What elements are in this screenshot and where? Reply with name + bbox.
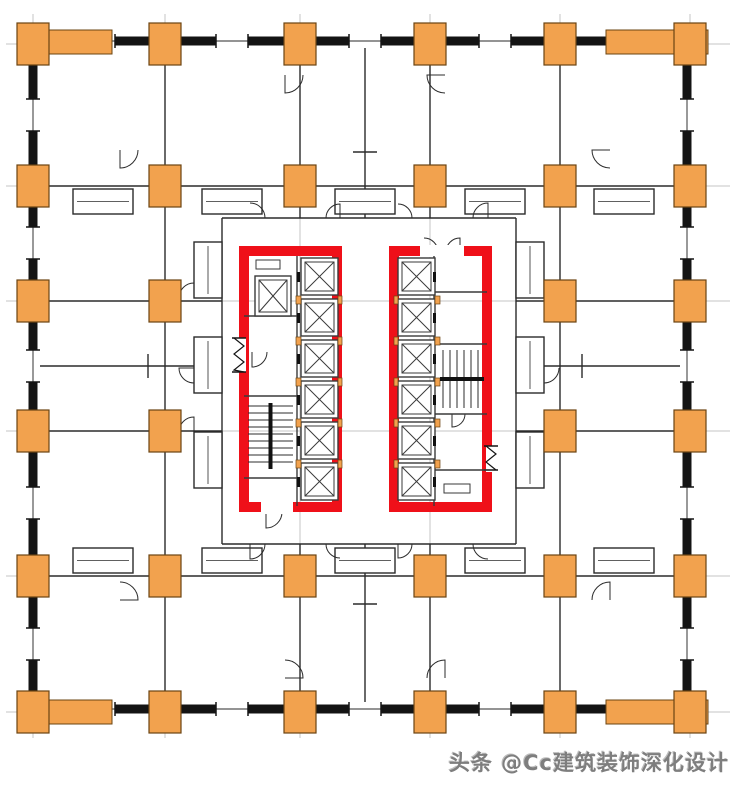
partition-walls	[36, 46, 688, 708]
elevator-shaft	[301, 381, 338, 418]
column	[149, 410, 181, 452]
column	[544, 691, 576, 733]
column	[674, 280, 706, 322]
grid-lines	[6, 14, 730, 738]
corner-wall-strips	[20, 30, 708, 724]
elevator-shaft	[301, 299, 338, 336]
column	[674, 555, 706, 597]
column	[149, 555, 181, 597]
column	[284, 165, 316, 207]
floor-plan-page: 头条 @Cc建筑装饰深化设计	[0, 0, 734, 787]
column	[284, 691, 316, 733]
elevator-shaft	[301, 422, 338, 459]
column	[17, 165, 49, 207]
elevator-shaft	[301, 258, 338, 295]
column	[544, 165, 576, 207]
structural-columns	[17, 23, 706, 733]
column	[674, 23, 706, 65]
elevator-shaft	[398, 299, 435, 336]
column	[17, 280, 49, 322]
elevator-shaft	[398, 422, 435, 459]
elevator-shaft	[398, 340, 435, 377]
service-pods	[73, 189, 654, 573]
left-core	[232, 251, 342, 514]
stair	[440, 350, 484, 408]
column	[149, 280, 181, 322]
column	[414, 23, 446, 65]
elevator-shaft	[255, 276, 291, 316]
column	[284, 555, 316, 597]
column	[414, 555, 446, 597]
column	[17, 555, 49, 597]
column	[17, 691, 49, 733]
column	[17, 23, 49, 65]
column	[674, 691, 706, 733]
window-openings	[26, 34, 694, 716]
column	[149, 691, 181, 733]
column	[674, 165, 706, 207]
stair	[248, 403, 293, 469]
elevator-shaft	[398, 381, 435, 418]
column	[544, 410, 576, 452]
column	[17, 410, 49, 452]
elevator-shaft	[301, 463, 338, 500]
floor-plan-drawing	[0, 0, 734, 787]
column	[149, 165, 181, 207]
elevator-shaft	[301, 340, 338, 377]
right-core	[394, 245, 498, 507]
column	[149, 23, 181, 65]
elevator-shaft	[398, 463, 435, 500]
column	[414, 691, 446, 733]
elevator-shaft	[398, 258, 435, 295]
column	[544, 555, 576, 597]
column	[674, 410, 706, 452]
column	[544, 280, 576, 322]
column	[284, 23, 316, 65]
perimeter-wall	[33, 41, 687, 709]
column	[414, 165, 446, 207]
watermark-text: 头条 @Cc建筑装饰深化设计	[449, 751, 729, 775]
watermark: 头条 @Cc建筑装饰深化设计	[449, 747, 729, 777]
column	[544, 23, 576, 65]
